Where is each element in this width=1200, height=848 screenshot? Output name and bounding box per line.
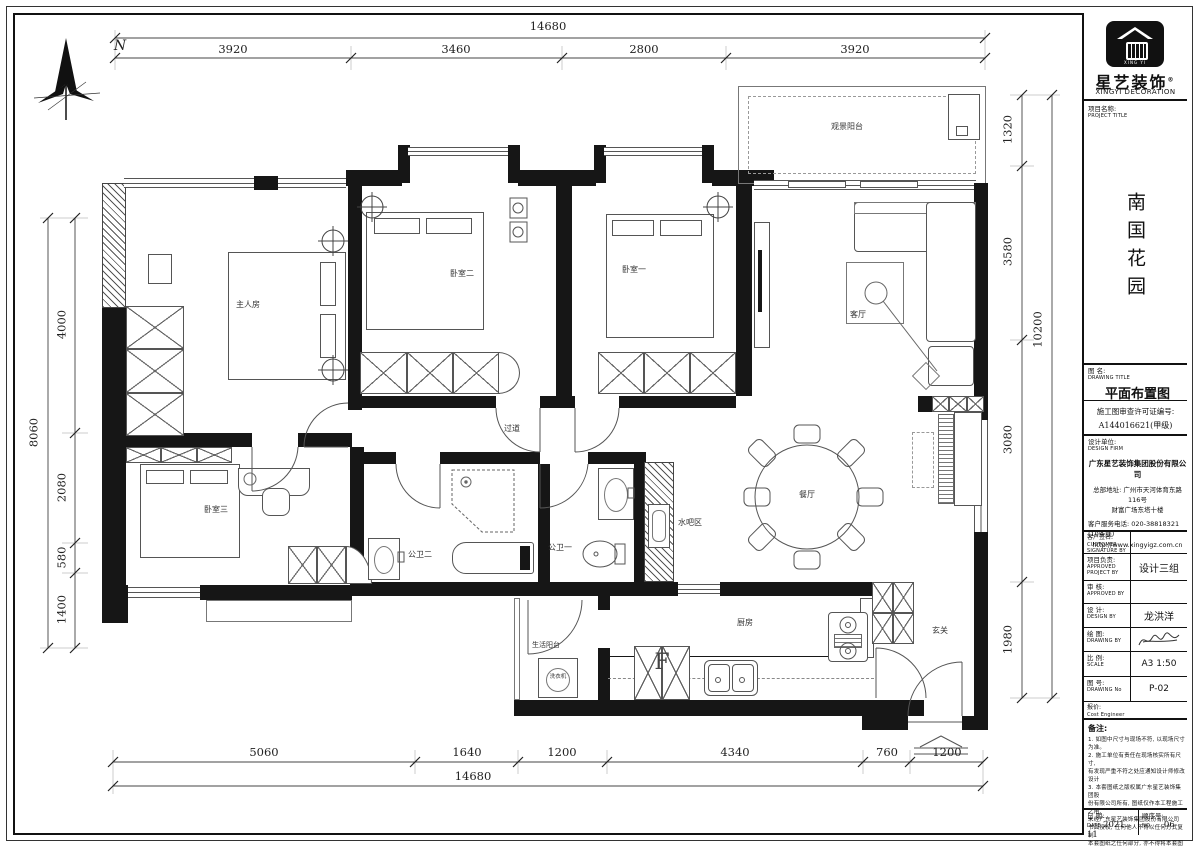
wall xyxy=(538,464,550,586)
room-label-bath1: 公卫一 xyxy=(530,543,590,553)
pillow xyxy=(190,470,228,484)
firm-addr2: 财富广场东塔十楼 xyxy=(1088,504,1187,514)
drawing-title-section: 图 名: DRAWING TITLE 平面布置图 xyxy=(1084,363,1187,400)
notes-line: 3. 本套图纸之版权属广东星艺装饰集团股 xyxy=(1088,784,1185,800)
bay-window xyxy=(408,147,510,156)
wall xyxy=(440,452,540,464)
brand-logo-icon: XING YI xyxy=(1106,21,1164,67)
chair xyxy=(262,488,290,516)
pillow xyxy=(660,220,702,236)
dim-left-1: 4000 xyxy=(56,285,69,365)
dim-left-total: 8060 xyxy=(28,393,41,473)
bathtub-tap xyxy=(520,546,530,570)
firm-label-cn: 设计单位: xyxy=(1088,438,1187,446)
permit-line2: A144016621(甲级) xyxy=(1084,420,1187,431)
sink-bowl xyxy=(732,664,754,692)
drawing-title-label-cn: 图 名: xyxy=(1088,367,1187,375)
project-title-section: 项目名称: PROJECT TITLE xyxy=(1084,103,1187,130)
room-label-dining: 餐厅 xyxy=(777,490,837,500)
approved-label-en2: PROJECT BY xyxy=(1087,570,1130,576)
wardrobe xyxy=(360,352,500,394)
pillow xyxy=(374,218,420,234)
design-value: 龙洪洋 xyxy=(1131,604,1187,627)
dim-right-1: 1320 xyxy=(1002,90,1015,170)
quote-row: 报价: Cost Engineer xyxy=(1084,701,1187,718)
balcony-inner-line xyxy=(748,96,976,174)
project-label-cn: 项目名称: xyxy=(1088,105,1187,113)
drawing-no-row: 图 号: DRAWING No P-02 xyxy=(1084,676,1187,701)
wall xyxy=(254,176,278,190)
wall xyxy=(556,176,572,396)
design-label-cn: 设 计: xyxy=(1087,606,1130,614)
pass-window xyxy=(678,584,720,594)
date-label-en: DATE xyxy=(1087,823,1101,829)
wall xyxy=(736,186,752,396)
dim-left-2: 2080 xyxy=(56,448,69,528)
drawn-label-en: DRAWING BY xyxy=(1087,638,1130,644)
wall xyxy=(862,716,908,730)
title-block: XING YI 星艺装饰® XINGYI DECORATION 项目名称: PR… xyxy=(1082,13,1187,835)
wall xyxy=(298,433,352,447)
brand-name-en: XINGYI DECORATION xyxy=(1084,88,1187,101)
sink-bowl xyxy=(708,664,730,692)
window xyxy=(128,587,200,598)
room-label-water-bar: 水吧区 xyxy=(660,518,720,528)
design-row: 设 计: DESIGN BY 龙洪洋 xyxy=(1084,603,1187,627)
room-label-kitchen: 厨房 xyxy=(715,618,775,628)
pillow xyxy=(146,470,184,484)
review-label-en: APPROVED BY xyxy=(1087,591,1130,597)
pillow xyxy=(426,218,472,234)
pillow xyxy=(320,314,336,358)
dim-bottom-5: 760 xyxy=(853,746,921,759)
cabinet-row xyxy=(126,447,232,463)
fridge-label: F xyxy=(634,658,690,668)
wall xyxy=(540,396,575,408)
wall xyxy=(350,582,642,596)
approved-value: 设计三组 xyxy=(1131,554,1187,580)
dim-bottom-1: 5060 xyxy=(224,746,304,759)
sliding-panel xyxy=(860,181,918,188)
seq-label-cn: 顺序号: xyxy=(1142,812,1187,820)
seq-value: 06 xyxy=(1164,820,1175,830)
dim-bottom-total: 14680 xyxy=(433,770,513,783)
wardrobe xyxy=(598,352,736,394)
project-label-en: PROJECT TITLE xyxy=(1088,113,1187,119)
piano-body xyxy=(954,412,982,506)
date-label-cn: 日 期: xyxy=(1087,812,1138,820)
review-label-cn: 审 核: xyxy=(1087,583,1130,591)
scale-label-cn: 比 例: xyxy=(1087,654,1130,662)
sofa-seat xyxy=(926,202,976,342)
drawing-no-value: P-02 xyxy=(1131,677,1187,701)
nightstand xyxy=(148,254,172,284)
room-label-living: 客厅 xyxy=(828,310,888,320)
drawing-no-label-cn: 图 号: xyxy=(1087,679,1130,687)
project-name-section: 南国花园 xyxy=(1084,130,1187,363)
scale-label-en: SCALE xyxy=(1087,662,1130,668)
dim-right-4: 1980 xyxy=(1002,600,1015,680)
wall xyxy=(642,582,678,596)
dim-top-1: 3920 xyxy=(193,43,273,56)
north-label: N xyxy=(110,40,130,53)
brand-logo-small-text: XING YI xyxy=(1106,60,1164,65)
design-label-en: DESIGN BY xyxy=(1087,614,1130,620)
date-row: 日 期: DATE 2021. 11 顺序号: NO. 06 xyxy=(1084,808,1187,835)
cooktop-grill xyxy=(834,634,862,648)
review-value xyxy=(1131,581,1187,603)
cabinet-row xyxy=(288,546,346,584)
dim-top-2: 3460 xyxy=(416,43,496,56)
firm-label-en: DESIGN FIRM xyxy=(1088,446,1187,452)
bay-window xyxy=(604,147,704,156)
wall xyxy=(918,396,932,412)
room-label-entry: 玄关 xyxy=(910,626,970,636)
drawing-title-label-en: DRAWING TITLE xyxy=(1088,375,1187,381)
wardrobe xyxy=(126,306,184,436)
drawing-sheet: F xyxy=(0,0,1200,848)
drawing-no-label-en: DRAWING No xyxy=(1087,687,1130,693)
dim-bottom-3: 1200 xyxy=(522,746,602,759)
permit-section: 施工图审查许可证编号: A144016621(甲级) xyxy=(1084,400,1187,434)
quote-label-cn: 报价: xyxy=(1087,704,1187,712)
notes-title: 备注: xyxy=(1088,723,1185,734)
room-label-corridor: 过道 xyxy=(482,424,542,434)
ac-unit-part xyxy=(956,126,968,136)
firm-addr1: 总部地址: 广州市天河体育东路116号 xyxy=(1088,484,1187,504)
wall xyxy=(962,716,988,730)
dim-bottom-2: 1640 xyxy=(427,746,507,759)
wall xyxy=(514,700,924,716)
notes-section: 备注: 1. 如图中尺寸与现场不符, 以现场尺寸为准。 2. 施工单位有责任在现… xyxy=(1084,718,1187,808)
signature-icon xyxy=(1137,631,1181,649)
wall xyxy=(598,596,610,610)
room-label-bedroom1: 卧室一 xyxy=(600,265,668,275)
tv-cabinet xyxy=(754,222,770,348)
piano-keys xyxy=(938,414,954,504)
tv xyxy=(758,250,762,312)
wall xyxy=(102,585,128,623)
seq-label-en: NO. xyxy=(1142,823,1152,829)
dim-left-4: 1400 xyxy=(56,570,69,650)
sliding-panel xyxy=(788,181,846,188)
customer-label-cn: 客户签名: xyxy=(1087,534,1130,542)
pillow xyxy=(320,262,336,306)
window xyxy=(278,178,346,188)
room-label-bedroom3: 卧室三 xyxy=(186,505,246,515)
dim-top-4: 3920 xyxy=(815,43,895,56)
dim-right-total: 10200 xyxy=(1032,285,1045,375)
notes-line: 有发现严重不符之处应通知设计师修改设计 xyxy=(1088,768,1185,784)
scale-value: A3 1:50 xyxy=(1131,652,1187,676)
brand-reg-mark: ® xyxy=(1168,77,1176,84)
dim-bottom-6: 1200 xyxy=(913,746,981,759)
dim-bottom-4: 4340 xyxy=(695,746,775,759)
room-label-bedroom2: 卧室二 xyxy=(430,269,494,279)
dim-top-3: 2800 xyxy=(604,43,684,56)
dim-right-3: 3080 xyxy=(1002,400,1015,480)
drawn-label-cn: 绘 图: xyxy=(1087,630,1130,638)
project-name: 南国花园 xyxy=(1122,192,1149,304)
washer-label: 洗衣机 xyxy=(538,672,578,682)
approved-label-cn: 项目负责: xyxy=(1087,556,1130,564)
drawn-signature xyxy=(1131,628,1187,651)
notes-line: 2. 施工单位有责任在现场核实所有尺寸, xyxy=(1088,752,1185,768)
room-label-view-balcony: 观景阳台 xyxy=(815,122,879,132)
wall xyxy=(619,396,736,408)
notes-line: 1. 如图中尺寸与现场不符, 以现场尺寸为准。 xyxy=(1088,736,1185,752)
room-label-bath2: 公卫二 xyxy=(390,550,450,560)
dim-right-2: 3580 xyxy=(1002,212,1015,292)
room-label-utility-balcony: 生活阳台 xyxy=(514,640,578,650)
entry-cabinet xyxy=(872,582,914,644)
review-row: 审 核: APPROVED BY xyxy=(1084,580,1187,603)
notes-line: 本套图纸之任何部分, 亦不得将本套图纸 xyxy=(1088,840,1185,848)
design-firm-section: 设计单位: DESIGN FIRM 广东星艺装饰集团股份有限公司 总部地址: 广… xyxy=(1084,434,1187,530)
ledge xyxy=(206,600,352,622)
firm-name: 广东星艺装饰集团股份有限公司 xyxy=(1088,458,1187,480)
pillow xyxy=(612,220,654,236)
permit-line1: 施工图审查许可证编号: xyxy=(1084,406,1187,417)
wall xyxy=(720,582,876,596)
dim-top-total: 14680 xyxy=(508,20,588,33)
piano-bench xyxy=(912,432,934,488)
scale-row: 比 例: SCALE A3 1:50 xyxy=(1084,651,1187,676)
approved-project-row: 项目负责: APPROVED PROJECT BY 设计三组 xyxy=(1084,553,1187,580)
drawn-by-row: 绘 图: DRAWING BY xyxy=(1084,627,1187,651)
customer-signature-cell xyxy=(1131,532,1187,553)
wall xyxy=(200,585,352,600)
brand-section: XING YI 星艺装饰® XINGYI DECORATION xyxy=(1084,13,1187,103)
room-label-master: 主人房 xyxy=(218,300,278,310)
window xyxy=(124,178,256,188)
sink-bowl xyxy=(604,478,628,512)
hatched-wall xyxy=(102,183,126,308)
cabinet-row xyxy=(932,396,984,412)
customer-signature-row: 客户签名: CUSTOMER SIGNATURE BY xyxy=(1084,530,1187,553)
wall xyxy=(362,396,496,408)
